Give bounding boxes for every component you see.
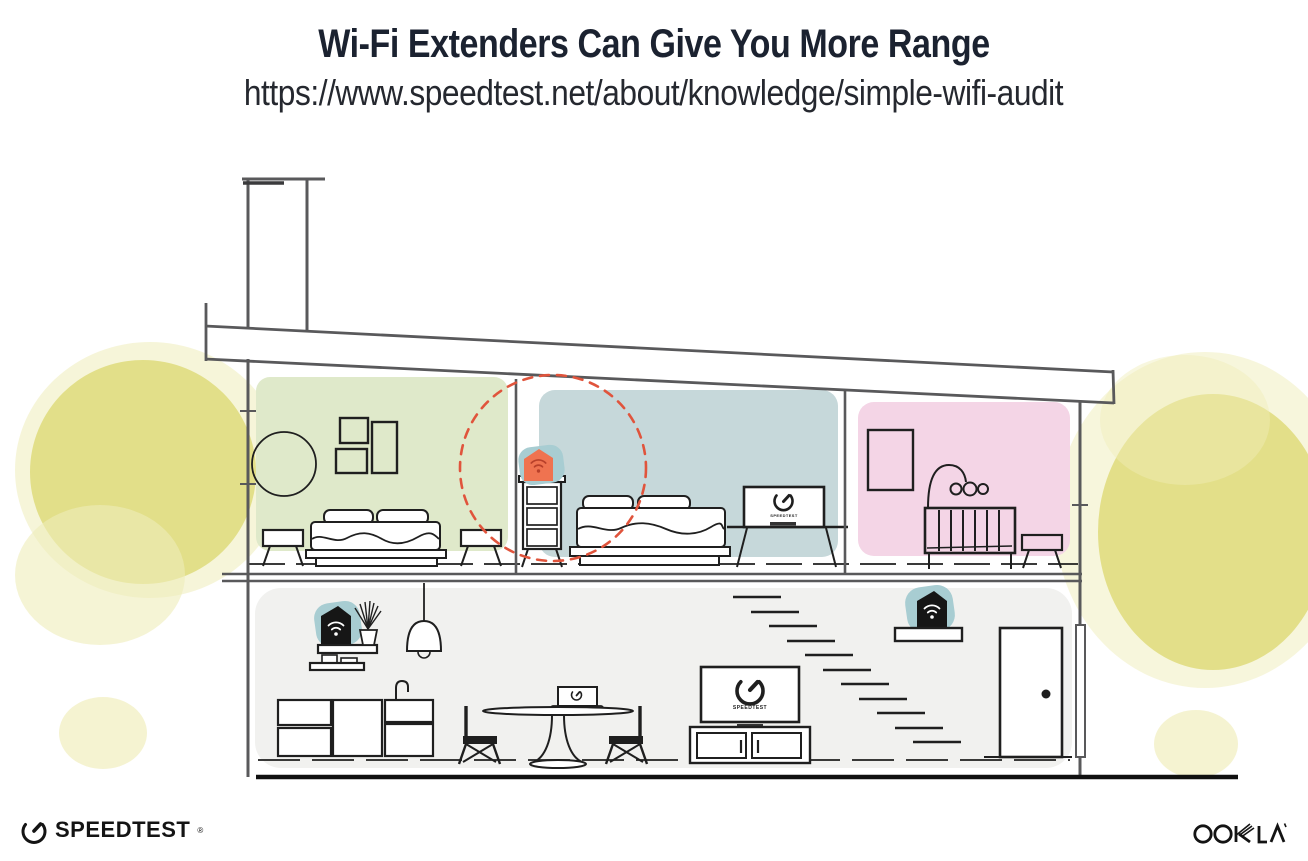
tree-right: [1055, 352, 1308, 778]
wifi-extender-highlighted: [517, 443, 566, 486]
doorknob: [1042, 690, 1051, 699]
downspout: [1076, 625, 1085, 757]
tv-bedroom: SPEEDTEST: [744, 487, 824, 527]
dresser: [519, 476, 565, 567]
tree-left: [15, 342, 285, 769]
shelf-board-upper: [318, 645, 377, 653]
cup: [322, 655, 337, 663]
ookla-wordmark-icon: [1192, 820, 1288, 846]
shelf-board-lower: [310, 663, 364, 670]
tv-bedroom-label: SPEEDTEST: [770, 513, 798, 518]
infographic-canvas: Wi-Fi Extenders Can Give You More Range …: [0, 0, 1308, 861]
ookla-logo: [1192, 820, 1288, 846]
registered-mark: ®: [197, 826, 203, 835]
speedtest-wordmark: SPEEDTEST: [55, 817, 190, 843]
chimney: [242, 179, 325, 332]
speedtest-gauge-icon: [20, 816, 48, 844]
shelf-board-right: [895, 628, 962, 641]
media-console: [690, 727, 810, 763]
speedtest-logo: SPEEDTEST®: [20, 816, 203, 844]
tv-living-label: SPEEDTEST: [733, 705, 767, 711]
house-illustration: SPEEDTEST: [0, 0, 1308, 861]
living-room-tv: SPEEDTEST: [690, 667, 810, 763]
